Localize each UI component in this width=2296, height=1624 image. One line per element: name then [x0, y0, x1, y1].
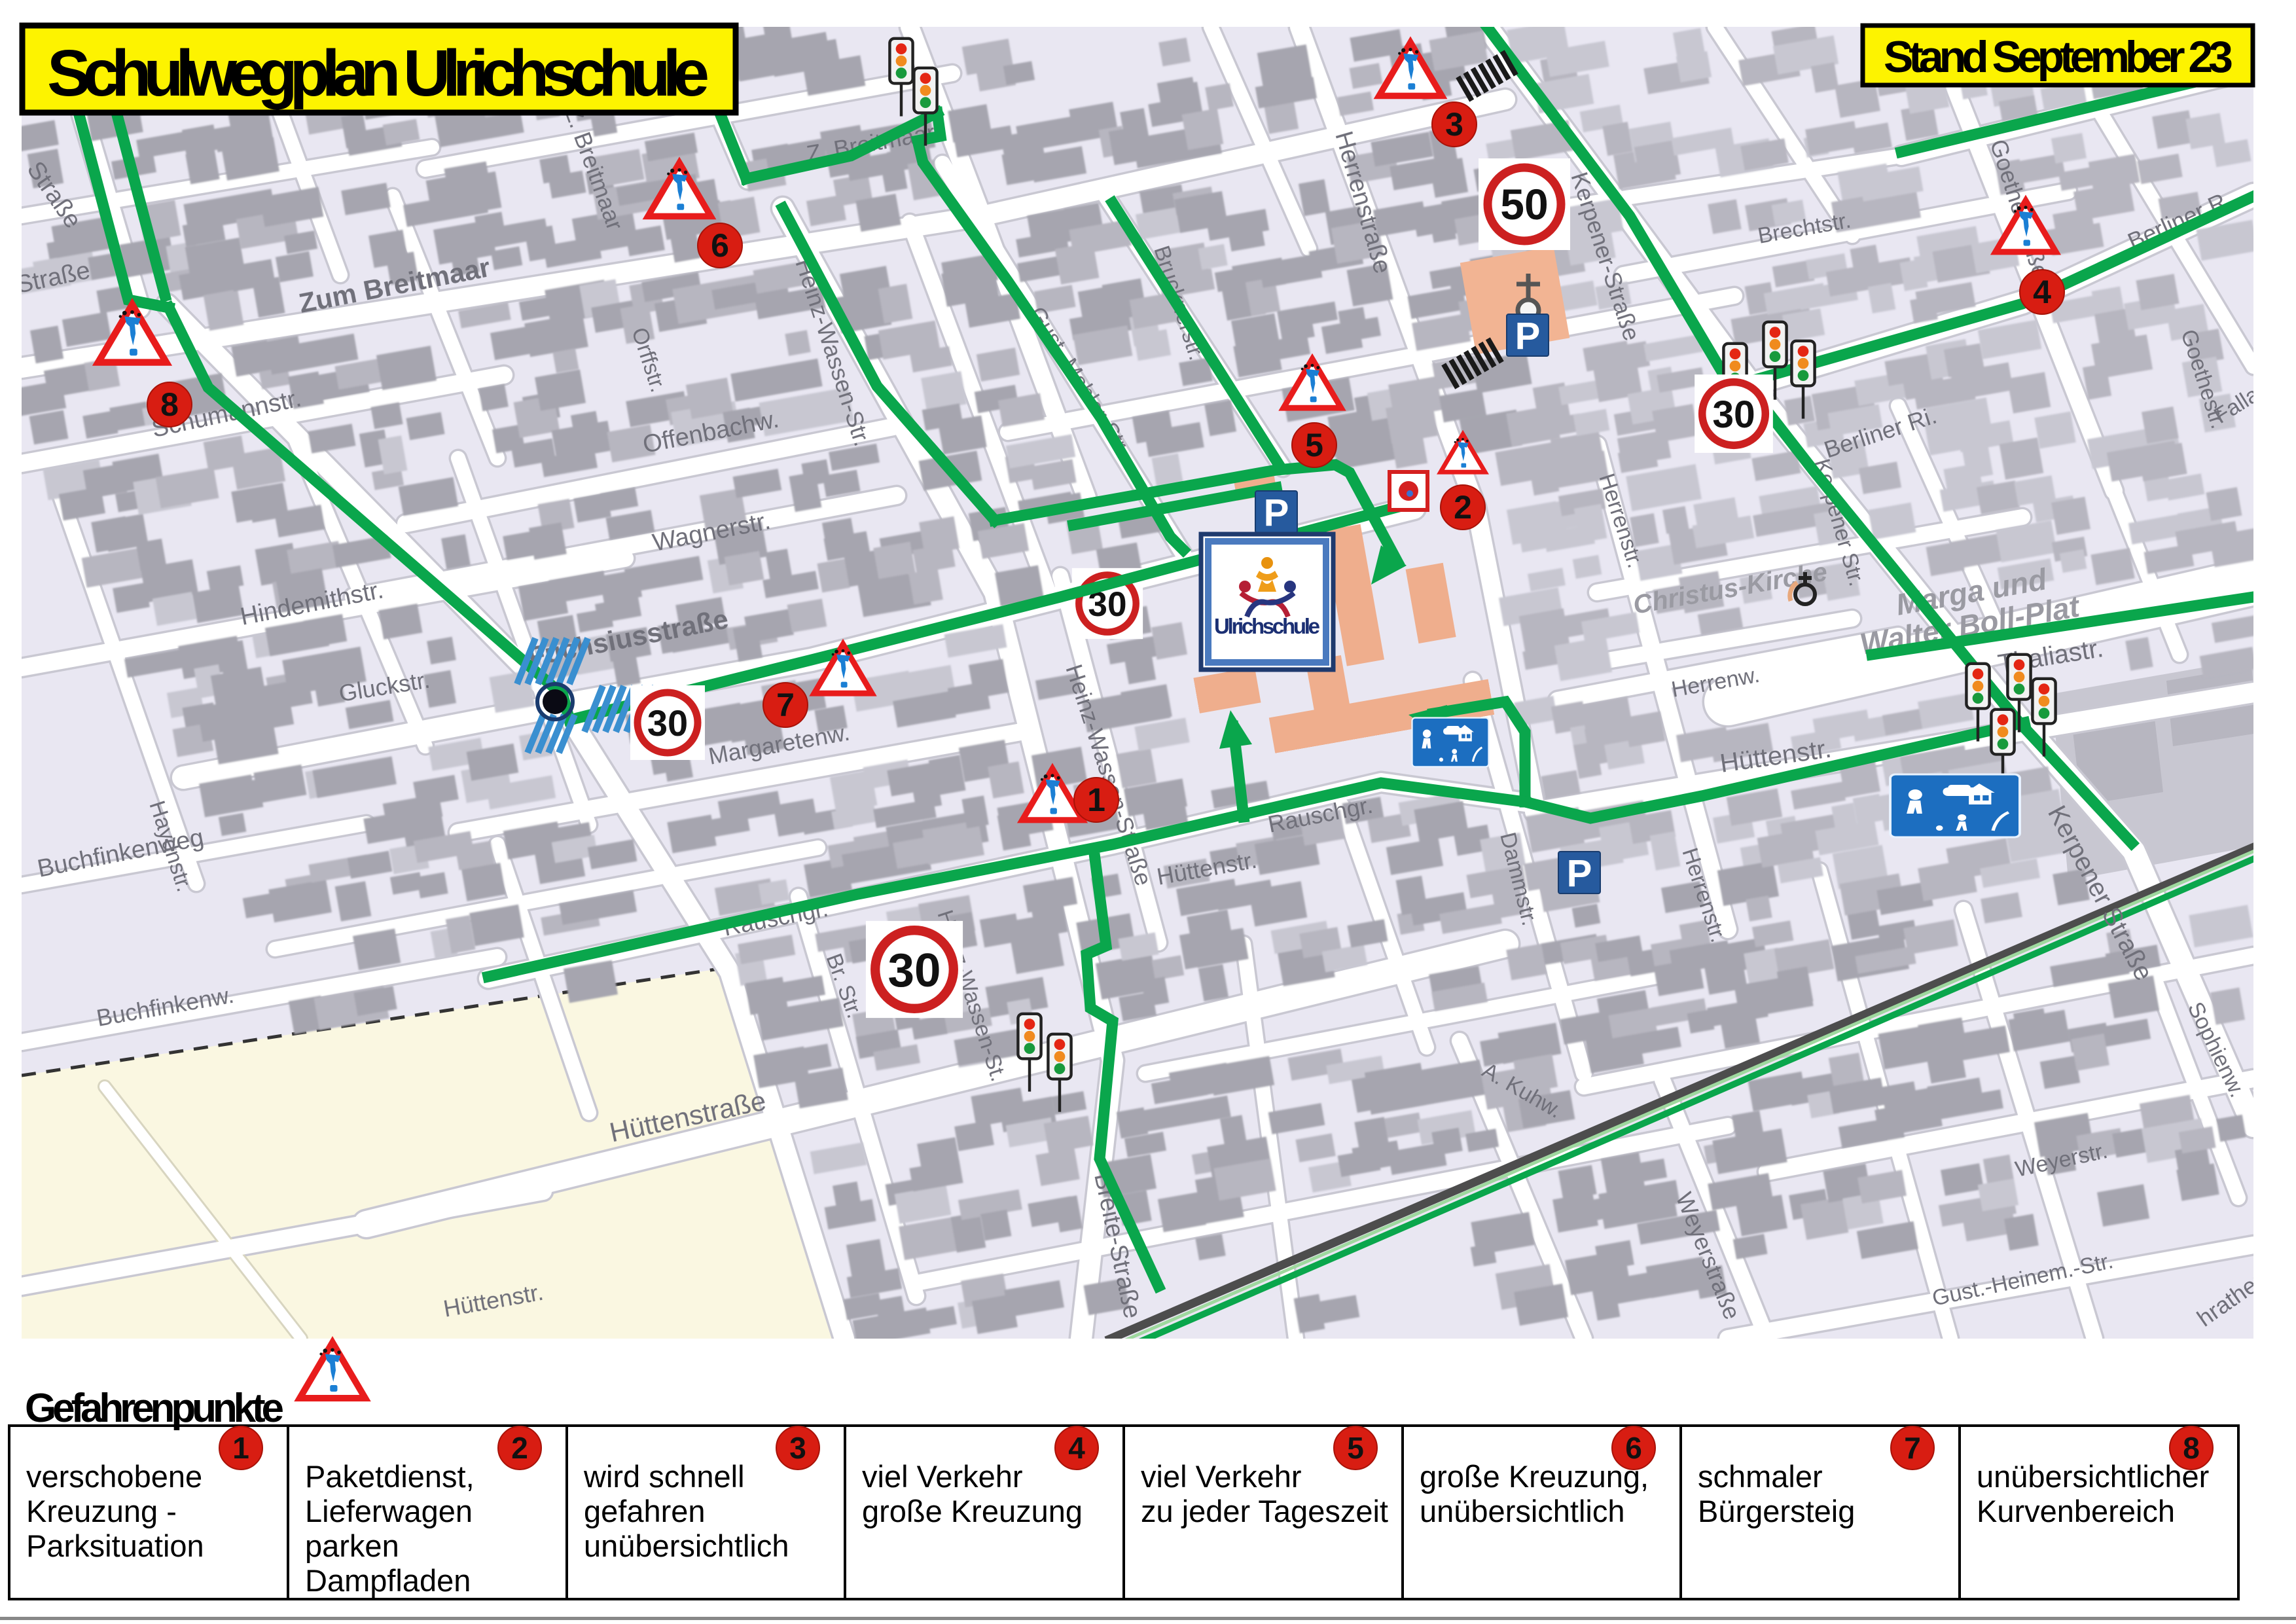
svg-text:1: 1	[232, 1431, 249, 1465]
svg-text:unübersichtlich: unübersichtlich	[584, 1528, 789, 1563]
svg-text:Parksituation: Parksituation	[26, 1528, 204, 1563]
svg-text:3: 3	[1445, 106, 1463, 143]
svg-text:schmaler: schmaler	[1698, 1459, 1823, 1494]
svg-text:große Kreuzung,: große Kreuzung,	[1420, 1459, 1649, 1494]
svg-text:50: 50	[1500, 180, 1548, 228]
svg-text:7: 7	[1904, 1431, 1921, 1465]
svg-text:1: 1	[1087, 782, 1105, 818]
svg-text:gefahren: gefahren	[584, 1494, 706, 1528]
svg-text:viel Verkehr: viel Verkehr	[1141, 1459, 1302, 1494]
svg-text:5: 5	[1347, 1431, 1364, 1465]
svg-text:Bürgersteig: Bürgersteig	[1698, 1494, 1855, 1528]
svg-text:3: 3	[789, 1431, 806, 1465]
svg-text:Gefahrenpunkte: Gefahrenpunkte	[25, 1386, 284, 1431]
svg-text:wird schnell: wird schnell	[583, 1459, 745, 1494]
svg-text:4: 4	[1068, 1431, 1085, 1465]
svg-text:6: 6	[711, 227, 729, 264]
svg-text:unübersichtlich: unübersichtlich	[1420, 1494, 1625, 1528]
svg-text:parken: parken	[305, 1528, 399, 1563]
svg-text:2: 2	[511, 1431, 528, 1465]
svg-text:7: 7	[776, 687, 795, 723]
svg-text:Dampfladen: Dampfladen	[305, 1563, 471, 1598]
svg-text:2: 2	[1454, 489, 1472, 526]
svg-text:viel Verkehr: viel Verkehr	[862, 1459, 1023, 1494]
svg-text:Lieferwagen: Lieferwagen	[305, 1494, 473, 1528]
svg-text:Stand September 23: Stand September 23	[1884, 32, 2233, 82]
svg-text:8: 8	[160, 386, 179, 423]
svg-text:Ulrichschule: Ulrichschule	[1214, 614, 1320, 638]
svg-text:4: 4	[2033, 274, 2051, 310]
svg-text:zu jeder Tageszeit: zu jeder Tageszeit	[1141, 1494, 1388, 1528]
svg-text:große Kreuzung: große Kreuzung	[862, 1494, 1083, 1528]
svg-text:Kurvenbereich: Kurvenbereich	[1977, 1494, 2175, 1528]
svg-text:unübersichtlicher: unübersichtlicher	[1977, 1459, 2209, 1494]
svg-text:Kreuzung -: Kreuzung -	[26, 1494, 177, 1528]
svg-text:Schulwegplan Ulrichschule: Schulwegplan Ulrichschule	[47, 37, 709, 110]
svg-text:Paketdienst,: Paketdienst,	[305, 1459, 475, 1494]
svg-text:5: 5	[1305, 427, 1323, 463]
svg-text:verschobene: verschobene	[26, 1459, 202, 1494]
